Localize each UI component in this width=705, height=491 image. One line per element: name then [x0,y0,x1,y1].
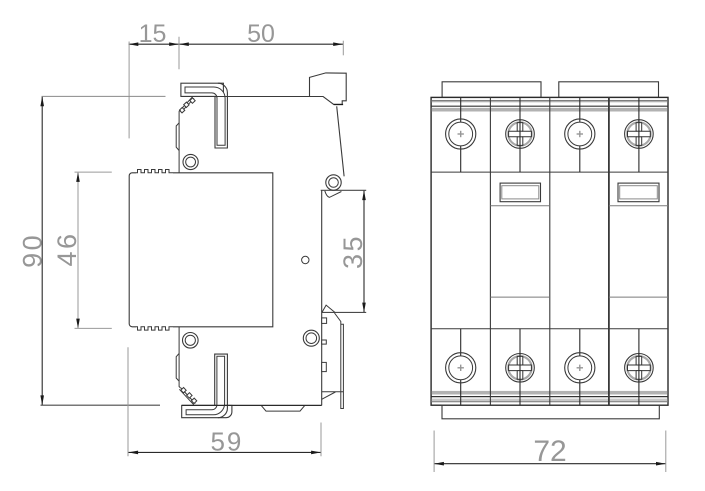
svg-text:15: 15 [139,20,167,48]
svg-text:72: 72 [533,435,566,468]
svg-text:50: 50 [247,20,275,48]
svg-text:90: 90 [18,233,48,268]
